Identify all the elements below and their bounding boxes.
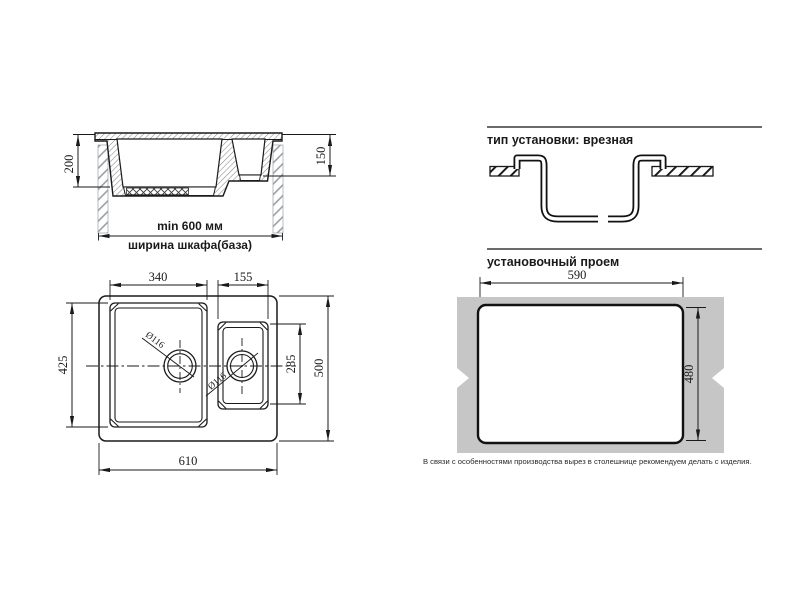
dim-500: 500 xyxy=(312,359,326,378)
cabinet-wall-right xyxy=(273,145,283,233)
sink-rim-profile xyxy=(517,158,663,219)
side-view: 200 150 min 600 мм ширина шкафа(база) xyxy=(62,133,336,252)
dim-590: 590 xyxy=(568,268,587,282)
sink-installation-drawing: 200 150 min 600 мм ширина шкафа(база) xyxy=(0,0,800,600)
top-view: Ø116 Ø116 340 155 425 285 500 610 xyxy=(56,270,334,475)
mounting-opening-section: установочный проем 590 480 В связи с осо… xyxy=(423,249,762,466)
cabinet-width-label: ширина шкафа(база) xyxy=(128,238,252,252)
dim-285: 285 xyxy=(284,355,298,374)
small-bowl-floor xyxy=(240,175,261,181)
dim-155: 155 xyxy=(234,270,253,284)
mounting-opening-heading: установочный проем xyxy=(487,255,619,269)
dim-340: 340 xyxy=(149,270,168,284)
cutout-opening xyxy=(478,305,683,443)
drawing-svg: 200 150 min 600 мм ширина шкафа(база) xyxy=(0,0,800,600)
dim-min-600: min 600 мм xyxy=(157,219,223,233)
installation-type-heading: тип установки: врезная xyxy=(487,133,633,147)
main-bowl-cavity xyxy=(117,139,222,187)
cabinet-wall-left xyxy=(98,145,108,233)
production-note: В связи с особенностями производства выр… xyxy=(423,457,752,466)
sink-outline xyxy=(99,296,277,441)
dim-150: 150 xyxy=(314,147,328,166)
dim-610: 610 xyxy=(179,454,198,468)
dim-480: 480 xyxy=(682,365,696,384)
dim-200: 200 xyxy=(62,155,76,174)
drain-grate-hatch xyxy=(127,188,189,195)
dim-425: 425 xyxy=(56,356,70,375)
installation-type-section: тип установки: врезная xyxy=(487,127,762,219)
